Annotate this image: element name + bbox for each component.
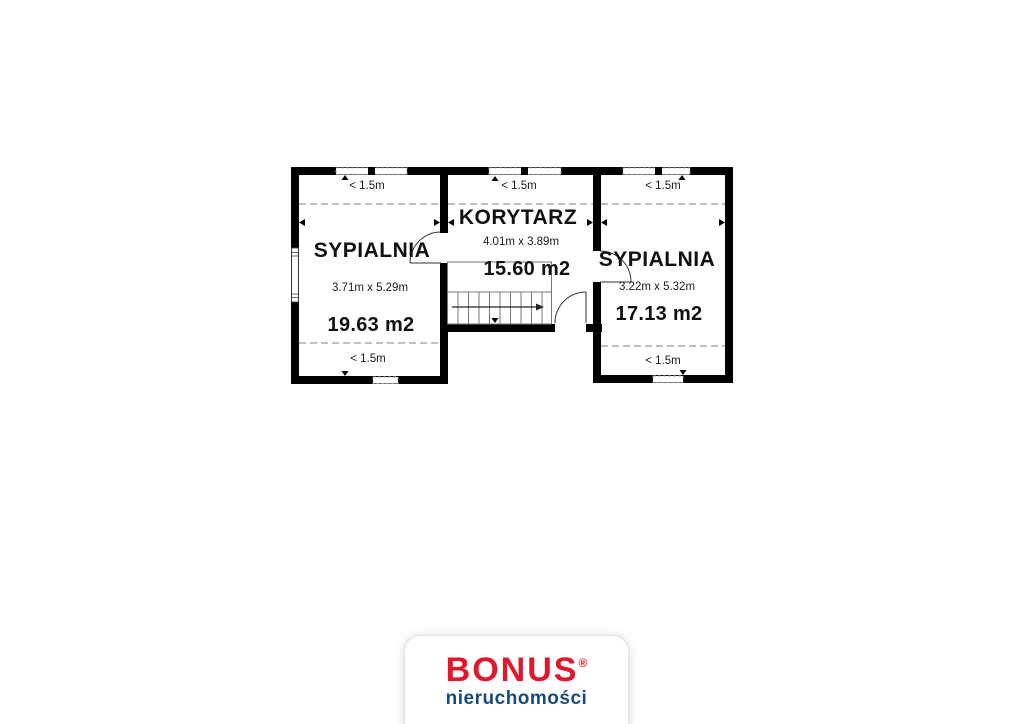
- top-windows: [336, 167, 690, 175]
- low-ceiling-label: < 1.5m: [501, 181, 536, 193]
- low-ceiling-label: < 1.5m: [349, 181, 384, 193]
- wall-bottom-left: [291, 376, 448, 384]
- marker-icon: [719, 219, 725, 226]
- floorplan-drawing: [0, 0, 1024, 724]
- window-icon: [653, 376, 683, 382]
- brand-logo-card: BONUS® nieruchomości: [404, 635, 629, 724]
- marker-icon: [587, 219, 593, 226]
- marker-icon: [342, 175, 349, 180]
- room-dimensions: 4.01m x 3.89m: [483, 237, 559, 249]
- window-icon: [489, 167, 561, 175]
- stairs-direction-arrow-icon: [452, 304, 544, 311]
- brand-name: BONUS: [446, 651, 579, 689]
- room-area: 17.13 m2: [616, 304, 703, 324]
- registered-trademark-icon: ®: [578, 656, 587, 670]
- low-ceiling-label: < 1.5m: [645, 181, 680, 193]
- room-label: SYPIALNIA: [314, 240, 431, 261]
- low-ceiling-label: < 1.5m: [645, 356, 680, 368]
- marker-icon: [299, 219, 305, 226]
- room-label: SYPIALNIA: [599, 249, 716, 270]
- window-icon: [292, 248, 299, 302]
- marker-icon: [434, 219, 440, 226]
- room-area: 15.60 m2: [484, 259, 571, 279]
- room-dimensions: 3.22m x 5.32m: [619, 282, 695, 294]
- wall-right: [725, 167, 733, 383]
- door-arc-icon: [555, 292, 586, 323]
- marker-icon: [492, 318, 499, 323]
- room-area: 19.63 m2: [328, 315, 415, 335]
- low-ceiling-label: < 1.5m: [350, 354, 385, 366]
- room-label: KORYTARZ: [459, 207, 577, 228]
- marker-icon: [601, 219, 607, 226]
- brand-tagline: nieruchomości: [405, 689, 628, 708]
- marker-icon: [680, 370, 687, 375]
- wall-divider-left: [440, 167, 448, 384]
- marker-icon: [448, 219, 454, 226]
- floorplan-page: < 1.5m SYPIALNIA 3.71m x 5.29m 19.63 m2 …: [0, 0, 1024, 724]
- marker-icon: [342, 371, 349, 376]
- window-icon: [336, 167, 407, 175]
- room-dimensions: 3.71m x 5.29m: [332, 283, 408, 295]
- brand-logo: BONUS®: [405, 653, 628, 687]
- window-icon: [623, 167, 690, 175]
- marker-icon: [492, 176, 499, 181]
- window-icon: [373, 377, 398, 383]
